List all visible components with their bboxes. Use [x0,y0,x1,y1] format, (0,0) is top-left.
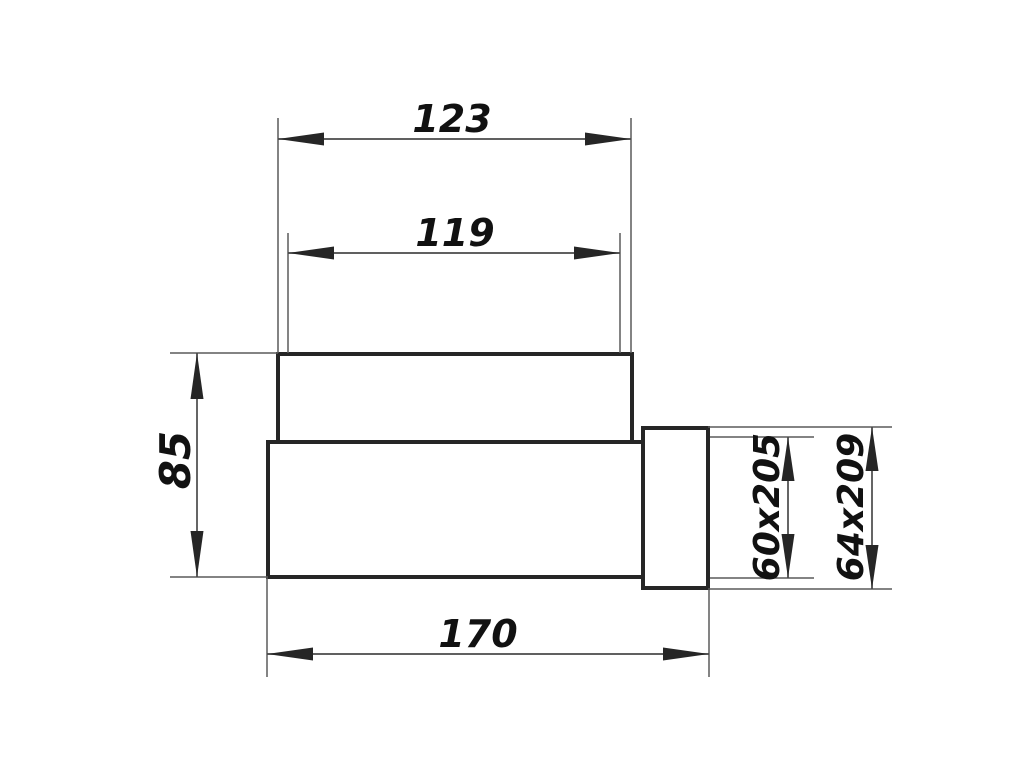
spigot-outline [643,428,708,588]
dimension-170: 170 [267,578,709,677]
dimension-drawing-svg: 123 119 85 170 [0,0,1024,768]
technical-drawing-canvas: 123 119 85 170 [0,0,1024,768]
dimension-60x205-label: 60x205 [747,433,788,581]
dimension-119: 119 [288,211,620,353]
dimension-85: 85 [151,353,278,577]
dimension-60x205: 60x205 [710,433,814,581]
dimension-170-label: 170 [438,612,517,656]
arrowhead-left-icon [267,648,313,661]
arrowhead-right-icon [663,648,709,661]
upper-body-outline [278,354,632,442]
part-outline [268,354,708,588]
arrowhead-up-icon [191,353,204,399]
dimension-64x209: 64x209 [708,427,892,589]
dimension-123-label: 123 [412,97,491,141]
arrowhead-left-icon [288,247,334,260]
lower-body-outline [268,442,643,577]
dimension-119-label: 119 [415,211,494,255]
arrowhead-left-icon [278,133,324,146]
dimension-85-label: 85 [151,431,200,489]
arrowhead-right-icon [574,247,620,260]
arrowhead-right-icon [585,133,631,146]
dimension-64x209-label: 64x209 [831,433,872,581]
arrowhead-down-icon [191,531,204,577]
